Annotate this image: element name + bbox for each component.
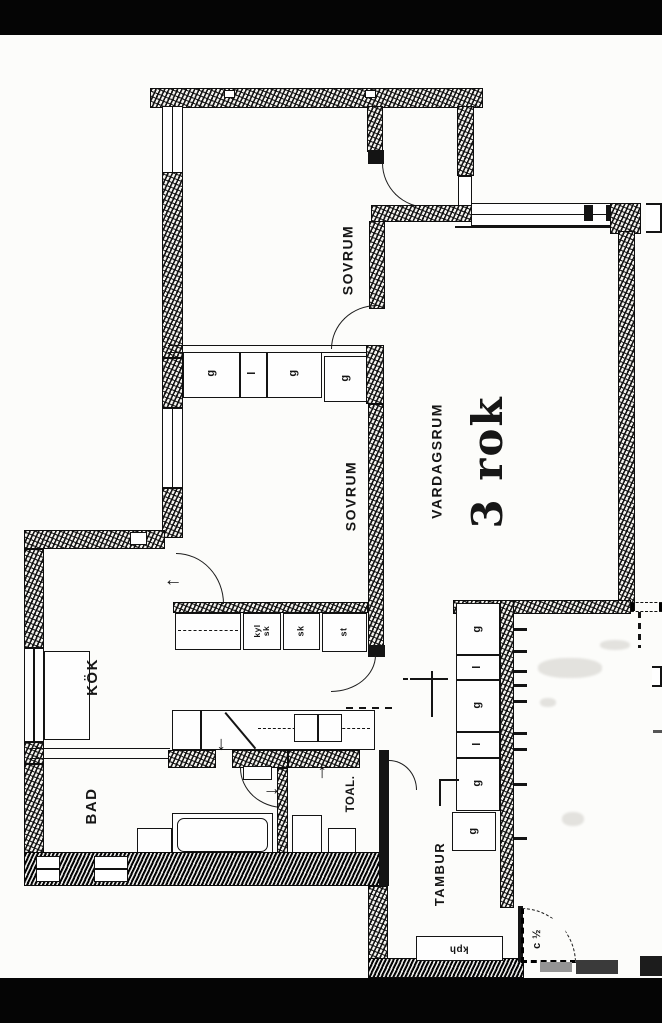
window-kitchen (24, 648, 44, 742)
closet-label: g (472, 625, 484, 632)
arrow-up-icon: ↑ (317, 763, 327, 782)
wall-left-kitchen-a (24, 549, 44, 648)
wall-joint-notch (224, 90, 235, 98)
wall-tick (514, 700, 527, 703)
letterbox-bottom (0, 978, 662, 1023)
stove-square (318, 714, 342, 742)
closet-label-kylsk: kyl sk (253, 624, 271, 637)
wall-tick (514, 732, 527, 735)
apartment-type-label: 3 rok (466, 395, 510, 528)
arrow-down-icon: ↓ (216, 735, 226, 754)
room-label-hallway: TAMBUR (433, 842, 447, 906)
closet-label: g (472, 779, 484, 786)
wall-tick (514, 650, 527, 653)
erased-mark (600, 640, 630, 650)
closet-label: g (468, 827, 480, 834)
wall-bottom-bathroom (24, 852, 381, 886)
reference-cross-dash (403, 678, 408, 680)
reference-mark-h (439, 779, 459, 781)
wall-tick (514, 684, 527, 687)
neighbor-wall-fragment (652, 666, 662, 687)
closet-label: g (288, 369, 300, 376)
door-post (368, 150, 384, 164)
room-label-bedroom1: SOVRUM (341, 225, 356, 295)
reference-cross-v (431, 671, 433, 717)
closet-label: l (472, 665, 484, 669)
closet-label: g (472, 701, 484, 708)
closet-label: l (247, 371, 259, 375)
erased-wall-blob (576, 960, 618, 974)
wall-tick (514, 783, 527, 786)
wall-right-bedroom2 (368, 404, 384, 647)
room-label-toilet: TOAL. (345, 776, 357, 813)
reference-cross-h (410, 678, 448, 680)
closet-label: g (340, 374, 352, 381)
erased-wall-blob (640, 956, 662, 976)
closet-label-sk: sk (296, 625, 305, 636)
neighbor-wall-fragment (646, 203, 662, 233)
wall-right-livingroom (618, 231, 635, 611)
toilet-fixture (292, 815, 322, 857)
wall-left-bedroom2-b (162, 488, 183, 538)
room-label-bathroom: BAD (84, 788, 100, 825)
arrow-left-icon: ← (164, 571, 183, 590)
room-label-bedroom2: SOVRUM (344, 461, 359, 531)
erased-mark (540, 698, 556, 707)
reference-mark-v (439, 779, 441, 806)
closet-label-st: st (339, 627, 348, 636)
window-bedroom2 (162, 408, 183, 488)
window-bay-kitchen (44, 651, 90, 740)
wall-bottom-tambur (368, 958, 524, 978)
wall-corner-topright (610, 203, 641, 234)
neighbor-wall-fragment (653, 730, 662, 733)
wall-stub-alcove (367, 106, 383, 152)
wall-band-a (168, 750, 216, 768)
floorplan-scan: ← ↓ ↑ → SOVRUM SOVRUM VARDAGSRUM 3 rok K… (0, 0, 662, 1023)
arrow-right-icon: → (263, 780, 282, 799)
room-label-kitchen: KÖK (85, 658, 101, 696)
window-mullion (584, 205, 593, 221)
closet-label: l (472, 742, 484, 746)
wall-bedroom1-livingroom (369, 221, 385, 309)
erased-wall-blob (540, 962, 572, 972)
closet-box (240, 352, 267, 398)
closet-label: g (206, 369, 218, 376)
stove-square (294, 714, 318, 742)
wall-kitchen-bath (30, 748, 170, 759)
window-bedroom1 (162, 106, 183, 174)
entry-door-note: c ½ (532, 929, 544, 949)
wall-tick (514, 837, 527, 840)
wall-right-alcove (457, 106, 474, 176)
wall-closet-row-end (366, 345, 384, 404)
erased-mark (538, 658, 602, 678)
room-label-livingroom: VARDAGSRUM (430, 403, 445, 519)
wall-left-bedroom1 (162, 172, 183, 358)
vent-bottom-wall (36, 856, 60, 882)
neighbor-dashed-wall (638, 612, 641, 648)
wall-tick (514, 748, 527, 751)
wall-tick (514, 670, 527, 673)
vent-bottom-wall (94, 856, 128, 882)
wall-dashed-neighbor (631, 602, 662, 612)
coat-shelf-label: kph (449, 943, 468, 954)
wall-left-tambur (379, 750, 389, 886)
wall-left-bedroom2-a (162, 358, 183, 408)
counter-divider (200, 710, 202, 750)
erased-mark (562, 812, 584, 826)
window-alcove (458, 176, 472, 206)
letterbox-top (0, 0, 662, 35)
wall-top-livingroom (371, 205, 472, 222)
window-sill-line (455, 226, 615, 228)
wall-top-bedroom1 (150, 88, 483, 108)
wall-right-tambur (500, 600, 514, 908)
kitchen-counter (172, 710, 375, 750)
bathtub (172, 813, 273, 857)
wall-left-bathroom (24, 764, 44, 856)
wall-tick (514, 628, 527, 631)
opening-dash-line (346, 707, 394, 709)
wall-vent-notch (130, 532, 147, 545)
counter-dashed-box (175, 613, 241, 650)
wall-joint-notch (365, 90, 376, 98)
